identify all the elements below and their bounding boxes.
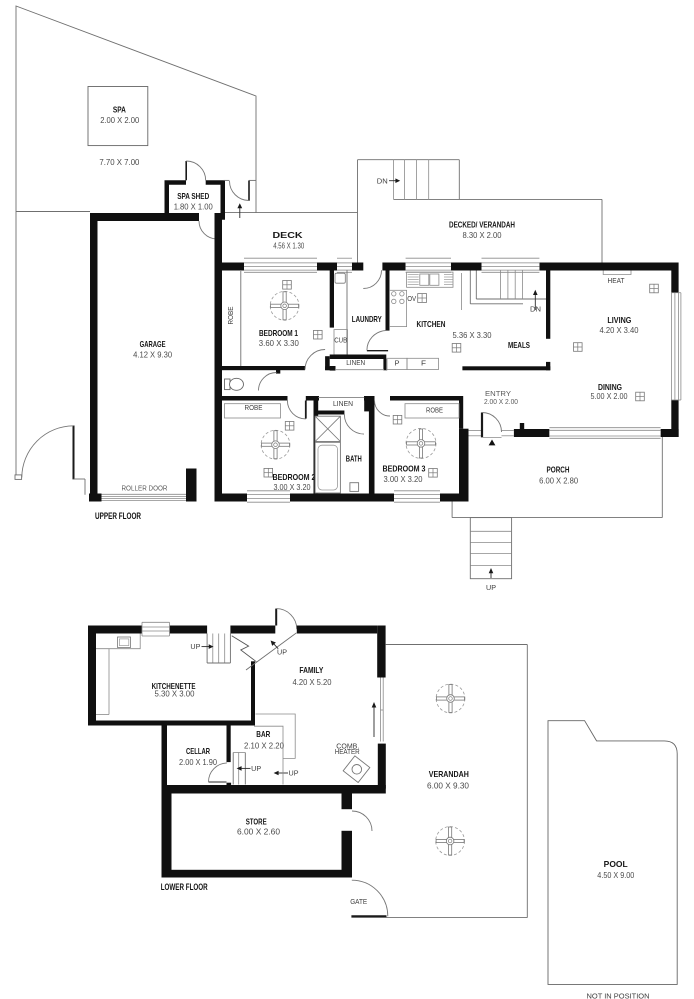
svg-text:CUB: CUB bbox=[334, 337, 347, 344]
svg-text:DECKED/ VERANDAH: DECKED/ VERANDAH bbox=[449, 220, 515, 229]
svg-text:F: F bbox=[421, 360, 426, 367]
svg-text:BEDROOM 2: BEDROOM 2 bbox=[273, 473, 316, 482]
svg-text:GATE: GATE bbox=[350, 899, 367, 906]
svg-text:4.20 X 5.20: 4.20 X 5.20 bbox=[293, 678, 333, 687]
svg-text:DN: DN bbox=[377, 179, 388, 186]
svg-text:BEDROOM 1: BEDROOM 1 bbox=[259, 329, 298, 338]
svg-text:6.00 X 2.80: 6.00 X 2.80 bbox=[539, 477, 579, 486]
svg-text:1.80 X 1.00: 1.80 X 1.00 bbox=[174, 202, 214, 211]
svg-text:P: P bbox=[395, 360, 400, 367]
svg-text:FAMILY: FAMILY bbox=[299, 666, 323, 675]
svg-text:SPA SHED: SPA SHED bbox=[177, 192, 209, 201]
svg-text:6.00 X 9.30: 6.00 X 9.30 bbox=[427, 781, 470, 790]
svg-text:LIVING: LIVING bbox=[607, 316, 631, 325]
svg-text:MEALS: MEALS bbox=[508, 341, 530, 350]
svg-text:HEATER: HEATER bbox=[335, 749, 360, 756]
svg-text:CELLAR: CELLAR bbox=[186, 747, 210, 756]
svg-text:2.10 X 2.20: 2.10 X 2.20 bbox=[244, 742, 285, 751]
svg-text:DN: DN bbox=[530, 307, 541, 314]
svg-text:DINING: DINING bbox=[598, 383, 622, 392]
svg-text:OV: OV bbox=[407, 296, 416, 303]
svg-text:BAR: BAR bbox=[256, 730, 270, 739]
svg-text:ROBE: ROBE bbox=[426, 408, 443, 415]
svg-text:NOT IN POSITION: NOT IN POSITION bbox=[587, 993, 650, 999]
svg-text:3.60 X 3.30: 3.60 X 3.30 bbox=[259, 339, 300, 348]
svg-text:PORCH: PORCH bbox=[547, 466, 570, 475]
svg-text:7.70 X 7.00: 7.70 X 7.00 bbox=[99, 158, 140, 167]
svg-text:ROBE: ROBE bbox=[245, 405, 263, 412]
svg-text:UP: UP bbox=[486, 585, 496, 592]
svg-text:6.00 X 2.60: 6.00 X 2.60 bbox=[237, 828, 281, 837]
svg-text:DECK: DECK bbox=[273, 231, 303, 240]
svg-text:LAUNDRY: LAUNDRY bbox=[352, 315, 382, 324]
svg-text:ENTRY: ENTRY bbox=[485, 391, 511, 398]
svg-text:GARAGE: GARAGE bbox=[140, 340, 166, 349]
svg-text:4.20 X 3.40: 4.20 X 3.40 bbox=[600, 326, 640, 335]
svg-text:UP: UP bbox=[289, 771, 299, 778]
svg-text:3.00 X 3.20: 3.00 X 3.20 bbox=[274, 483, 311, 492]
svg-text:4.12 X 9.30: 4.12 X 9.30 bbox=[133, 351, 173, 360]
svg-text:8.30 X 2.00: 8.30 X 2.00 bbox=[463, 231, 503, 240]
svg-text:SPA: SPA bbox=[113, 106, 126, 115]
svg-text:2.00 X 2.00: 2.00 X 2.00 bbox=[484, 399, 518, 406]
svg-text:UP: UP bbox=[277, 650, 287, 657]
svg-text:UPPER FLOOR: UPPER FLOOR bbox=[95, 511, 141, 521]
svg-text:LOWER FLOOR: LOWER FLOOR bbox=[161, 882, 208, 892]
svg-text:BATH: BATH bbox=[346, 454, 362, 463]
svg-text:HEAT: HEAT bbox=[608, 278, 626, 285]
svg-text:5.00 X 2.00: 5.00 X 2.00 bbox=[591, 392, 628, 401]
svg-text:5.30 X 3.00: 5.30 X 3.00 bbox=[155, 690, 196, 699]
svg-text:3.00 X 3.20: 3.00 X 3.20 bbox=[384, 475, 424, 484]
svg-text:LINEN: LINEN bbox=[333, 401, 353, 408]
svg-text:BEDROOM 3: BEDROOM 3 bbox=[383, 465, 426, 474]
svg-text:ROBE: ROBE bbox=[228, 306, 235, 324]
svg-text:2.00 X 2.00: 2.00 X 2.00 bbox=[100, 116, 140, 125]
svg-text:UP: UP bbox=[190, 644, 200, 651]
svg-text:VERANDAH: VERANDAH bbox=[429, 770, 469, 779]
svg-text:KITCHEN: KITCHEN bbox=[417, 320, 446, 329]
svg-text:ROLLER DOOR: ROLLER DOOR bbox=[122, 486, 168, 493]
svg-text:2.00 X 1.90: 2.00 X 1.90 bbox=[179, 758, 218, 767]
svg-text:STORE: STORE bbox=[246, 817, 267, 826]
svg-text:POOL: POOL bbox=[604, 860, 628, 869]
svg-text:4.50 X 9.00: 4.50 X 9.00 bbox=[597, 871, 634, 880]
svg-text:5.36 X 3.30: 5.36 X 3.30 bbox=[453, 331, 493, 340]
svg-text:4.56 X 1.30: 4.56 X 1.30 bbox=[273, 242, 304, 251]
svg-text:LINEN: LINEN bbox=[346, 360, 365, 367]
svg-text:UP: UP bbox=[251, 766, 261, 773]
